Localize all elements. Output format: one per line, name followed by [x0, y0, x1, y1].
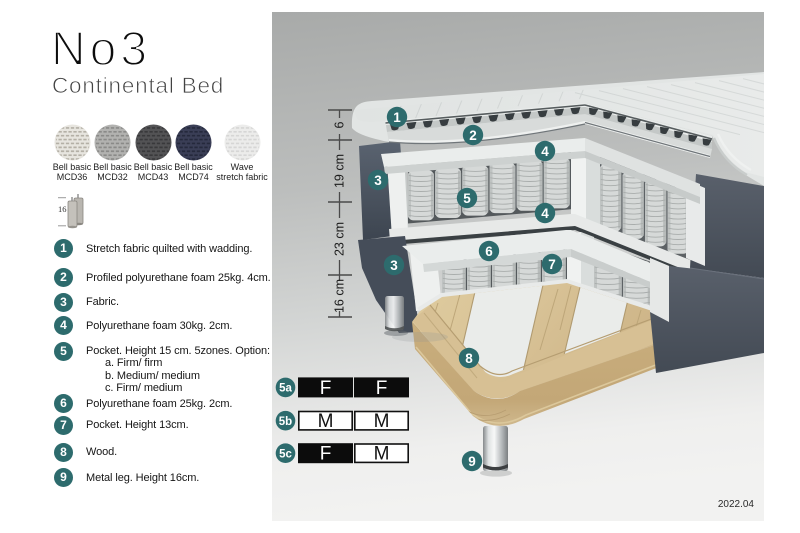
- svg-text:1: 1: [393, 110, 401, 125]
- svg-text:M: M: [318, 411, 334, 432]
- svg-text:F: F: [320, 378, 332, 399]
- svg-text:3: 3: [390, 258, 398, 273]
- svg-text:M: M: [374, 444, 390, 465]
- svg-text:5b: 5b: [279, 416, 292, 428]
- svg-text:3: 3: [374, 173, 382, 188]
- svg-text:5c: 5c: [279, 448, 292, 460]
- svg-text:6: 6: [485, 244, 493, 259]
- svg-text:2: 2: [469, 128, 477, 143]
- svg-text:8: 8: [465, 351, 473, 366]
- svg-text:19 cm: 19 cm: [332, 154, 346, 188]
- svg-text:9: 9: [468, 454, 476, 469]
- svg-text:2022.04: 2022.04: [718, 499, 755, 510]
- svg-text:M: M: [374, 411, 390, 432]
- svg-text:5: 5: [463, 191, 471, 206]
- svg-text:F: F: [320, 444, 332, 465]
- svg-text:7: 7: [548, 257, 556, 272]
- svg-text:4: 4: [541, 206, 549, 221]
- svg-text:6: 6: [332, 121, 346, 128]
- svg-text:4: 4: [541, 144, 549, 159]
- svg-text:16 cm: 16 cm: [332, 279, 346, 313]
- svg-text:5a: 5a: [279, 383, 292, 395]
- svg-text:23 cm: 23 cm: [332, 222, 346, 256]
- svg-text:F: F: [376, 378, 388, 399]
